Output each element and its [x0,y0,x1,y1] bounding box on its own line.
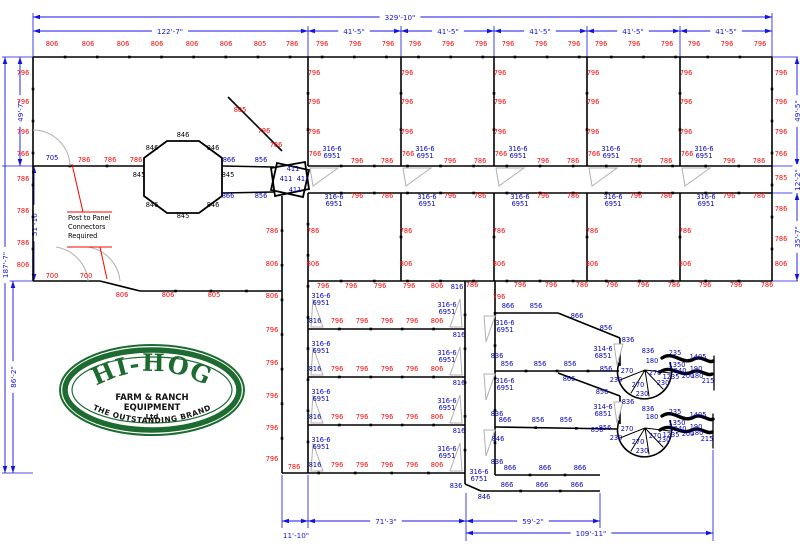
fence-post [482,56,485,59]
part-number-label: 230 [636,447,649,455]
dimension-arrow-icon [3,57,8,64]
part-number-label: 816 [309,365,322,373]
part-number-label: 796 [356,317,369,325]
dimension-label: 41'-5" [437,27,459,36]
part-number-label: 786 [660,192,673,200]
fence-post [572,280,575,283]
part-number-label: 786 [679,227,692,235]
part-number-label: 1405 [690,353,707,361]
fence-post [128,56,131,59]
part-number-label: 6951 [417,152,434,160]
dimension-label-group: 187'-7" [1,247,10,283]
part-number-label: 796 [688,40,701,48]
hihog-logo: HI-HOG FARM & RANCH EQUIPMENT Ltd THE OU… [57,343,247,438]
part-number-label: 700 [80,272,93,280]
fence-post [307,285,310,288]
part-number-label: 796 [381,461,394,469]
fence-post [472,165,475,168]
fence-post [559,490,562,493]
fence-post [64,56,67,59]
note-text: Connectors [68,223,106,231]
part-number-label: 806 [266,260,279,268]
part-number-label: 806 [116,291,129,299]
fence-post [679,92,682,95]
part-number-label: 816 [309,413,322,421]
part-number-label: 856 [255,156,268,164]
part-number-label: 866 [222,192,235,200]
part-number-label: 766 [681,150,694,158]
part-number-label: 786 [270,141,283,149]
part-number-label: 6951 [696,152,713,160]
part-number-label: 796 [444,192,457,200]
part-number-label: 805 [208,291,221,299]
part-number-label: 796 [266,455,279,463]
part-number-label: 796 [545,281,558,289]
part-number-label: 786 [17,239,30,247]
part-number-label: 6951 [605,200,622,208]
part-number-label: 866 [571,481,584,489]
part-number-label: 411 [280,175,293,183]
logo-line1: FARM & RANCH [115,393,188,403]
part-number-label: 766 [402,150,415,158]
fence-post [32,152,35,155]
part-number-label: 6951 [313,395,330,403]
part-number-label: 796 [17,128,30,136]
part-number-label: 856 [530,302,543,310]
dimension-label: 51'-10" [30,210,39,236]
fence-post [307,409,310,412]
dimension-arrow-icon [673,29,680,34]
part-number-label: 796 [382,40,395,48]
logo-line2: EQUIPMENT [124,403,181,413]
part-number-label: 796 [730,281,743,289]
part-number-label: 700 [46,272,59,280]
part-number-label: 6951 [313,299,330,307]
fence-post [32,248,35,251]
dimension-label: 86'-2" [9,366,18,388]
fence-post [704,165,707,168]
part-number-label: 796 [475,40,488,48]
part-number-label: 846 [177,131,190,139]
dimension-arrow-icon [282,519,289,524]
fence-post [354,472,357,475]
part-number-label: 796 [381,413,394,421]
part-number-label: 6951 [512,200,529,208]
part-number-label: 786 [78,156,91,164]
fence-post [400,92,403,95]
fence-post [706,56,709,59]
part-number-label: 766 [17,150,30,158]
part-number-label: 856 [600,324,613,332]
part-number-label: 846 [207,144,220,152]
part-number-label: 766 [309,150,322,158]
part-number-label: 806 [493,260,506,268]
part-number-label: 856 [596,388,609,396]
dimension-arrow-icon [3,466,8,473]
part-number-label: 796 [17,69,30,77]
dimension-arrow-icon [308,29,315,34]
part-number-label: 836 [622,336,635,344]
part-number-label: 786 [381,157,394,165]
part-number-label: 806 [162,291,175,299]
part-number-label: 846 [146,144,159,152]
fence-line [222,166,274,167]
gate-icon [403,168,431,186]
part-number-label: 766 [588,150,601,158]
part-number-label: 796 [587,128,600,136]
part-number-label: 806 [82,40,95,48]
part-number-label: 6951 [326,200,343,208]
fence-post [340,165,343,168]
part-number-label: 806 [431,461,444,469]
gate-icon [614,344,623,365]
dimension-label: 122'-7" [157,27,183,36]
dimension-arrow-icon [680,29,687,34]
dimension-label: 41'-5" [622,27,644,36]
dimension-label: 71'-3" [375,517,397,526]
part-number-label: 796 [406,365,419,373]
part-number-label: 786 [567,192,580,200]
part-number-label: 846 [478,493,491,501]
fence-post [439,165,442,168]
note-leader-line [72,164,83,212]
part-number-label: 796 [266,359,279,367]
part-number-label: 796 [258,127,271,135]
fence-post [493,92,496,95]
note-text: Required [68,232,97,240]
part-number-label: 856 [600,365,613,373]
part-number-label: 1235 [663,431,680,439]
part-number-label: 796 [308,128,321,136]
fence-post [539,280,542,283]
part-number-label: 786 [381,192,394,200]
fence-post [32,120,35,123]
part-number-label: 806 [400,260,413,268]
fence-post [771,88,774,91]
part-number-label: 806 [151,40,164,48]
part-number-label: 785 [775,174,788,182]
part-number-label: 796 [537,157,550,165]
part-number-label: 796 [699,281,712,289]
part-number-label: 796 [406,461,419,469]
part-number-label: 786 [286,40,299,48]
part-number-label: 796 [606,281,619,289]
part-number-label: 6951 [419,200,436,208]
fence-post [281,437,284,440]
part-number-label: 796 [266,392,279,400]
part-number-label: 786 [130,156,143,164]
dimension-arrow-icon [706,531,713,536]
part-number-label: 796 [680,128,693,136]
gate-icon [310,168,338,186]
fence-post [738,192,741,195]
fence-post [307,92,310,95]
dimension-label-group: 12'-2" [793,164,800,196]
part-number-label: 6951 [324,152,341,160]
part-number-label: 6951 [439,308,456,316]
dimension-arrow-icon [33,29,40,34]
part-number-label: 786 [775,235,788,243]
fence-post [338,328,341,331]
part-number-label: 806 [431,317,444,325]
part-number-label: 796 [595,40,608,48]
fence-post [572,165,575,168]
part-number-label: 796 [401,98,414,106]
part-number-label: 796 [630,157,643,165]
part-number-label: 796 [351,157,364,165]
part-number-label: 786 [753,192,766,200]
gate-icon [484,430,495,456]
part-number-label: 806 [431,413,444,421]
fence-post [514,56,517,59]
part-number-label: 270 [649,369,662,377]
fence-post [281,333,284,336]
part-number-label: 796 [568,40,581,48]
part-number-label: 796 [349,40,362,48]
part-number-label: 796 [401,69,414,77]
fence-post [738,165,741,168]
gate-icon [682,168,710,186]
fence-post [281,368,284,371]
part-number-label: 796 [494,98,507,106]
part-number-label: 235 [669,408,682,416]
part-number-label: 856 [255,192,268,200]
fence-post [224,56,227,59]
part-number-label: 1235 [663,373,680,381]
part-number-label: 796 [406,413,419,421]
part-number-label: 796 [266,424,279,432]
fence-post [338,424,341,427]
fence-post [406,165,409,168]
fence-post [406,192,409,195]
fence-post [317,472,320,475]
part-number-label: 806 [679,260,692,268]
dimension-label: 59'-2" [522,517,544,526]
dimension-arrow-icon [466,519,473,524]
dimension-label: 41'-5" [715,27,737,36]
part-number-label: 6951 [439,356,456,364]
fence-post [401,328,404,331]
fence-post [439,192,442,195]
part-number-label: 786 [466,281,479,289]
dimension-arrow-icon [308,519,315,524]
part-number-label: 270 [632,438,645,446]
part-number-label: 786 [753,157,766,165]
part-number-label: 796 [444,157,457,165]
part-number-label: 6951 [439,404,456,412]
part-number-label: 766 [775,150,788,158]
part-number-label: 230 [610,434,623,442]
part-number-label: 6951 [313,347,330,355]
part-number-label: 6751 [471,475,488,483]
part-number-label: 796 [630,192,643,200]
part-number-label: 796 [535,40,548,48]
part-number-label: 786 [17,207,30,215]
site-plan-drawing: 329'-10"122'-7"41'-5"41'-5"41'-5"41'-5"4… [0,0,800,556]
part-number-label: 816 [453,379,466,387]
part-number-label: 796 [356,413,369,421]
part-number-label: 806 [775,260,788,268]
part-number-label: 796 [494,128,507,136]
dimension-arrow-icon [587,29,594,34]
part-number-label: 270 [632,381,645,389]
part-number-label: 805 [254,40,267,48]
part-number-label: 866 [563,375,576,383]
part-number-label: 796 [17,98,30,106]
fence-post [106,165,109,168]
dimension-arrow-icon [11,466,16,473]
part-number-label: 796 [775,69,788,77]
fence-post [427,472,430,475]
part-number-label: 806 [431,282,444,290]
part-number-label: 215 [701,435,714,443]
fence-post [771,248,774,251]
fence-post [610,56,613,59]
fence-post [771,152,774,155]
part-number-label: 856 [501,360,514,368]
dimension-label: 35'-7" [793,226,800,248]
fence-post [370,376,373,379]
part-number-label: 856 [534,360,547,368]
note-text: Post to Panel [68,214,111,222]
fence-post [192,56,195,59]
fence-post [534,426,537,429]
part-number-label: 845 [133,171,146,179]
fence-post [307,441,310,444]
part-number-label: 786 [104,156,117,164]
dimension-arrow-icon [795,274,800,281]
cad-plan-page: 329'-10"122'-7"41'-5"41'-5"41'-5"41'-5"4… [0,0,800,556]
dimension-label-group: 35'-7" [793,221,800,253]
part-number-label: 806 [46,40,59,48]
part-number-label: 866 [501,481,514,489]
fence-post [464,415,467,418]
part-number-label: 805 [234,106,247,114]
dimension-label: 12'-2" [793,169,800,191]
part-number-label: 796 [345,282,358,290]
part-number-label: 786 [288,463,301,471]
dimension-arrow-icon [301,29,308,34]
part-number-label: 6951 [313,443,330,451]
fence-post [174,290,177,293]
fence-post [464,314,467,317]
dimension-arrow-icon [33,15,40,20]
dimension-arrow-icon [487,29,494,34]
part-number-label: 786 [567,157,580,165]
part-number-label: 6851 [595,410,612,418]
part-number-label: 796 [351,192,364,200]
part-number-label: 836 [450,482,463,490]
fence-post [519,490,522,493]
fence-post [432,424,435,427]
fence-post [373,192,376,195]
fence-post [464,449,467,452]
part-number-label: 816 [453,331,466,339]
part-number-label: 796 [374,282,387,290]
part-number-label: 796 [754,40,767,48]
fence-post [32,88,35,91]
part-number-label: 796 [587,98,600,106]
part-number-label: 705 [46,154,59,162]
part-number-label: 796 [721,40,734,48]
part-number-label: 796 [317,282,330,290]
gate-icon [484,374,495,400]
part-number-label: 866 [574,464,587,472]
part-number-label: 866 [504,464,517,472]
part-number-label: 796 [680,69,693,77]
fence-post [307,223,310,226]
part-number-label: 836 [622,398,635,406]
part-number-label: 806 [586,260,599,268]
part-number-label: 796 [403,282,416,290]
fence-post [529,474,532,477]
fence-post [432,376,435,379]
fence-post [307,254,310,257]
part-number-label: 411 [297,175,310,183]
dimension-arrow-icon [795,57,800,64]
fence-post [506,280,509,283]
fence-post [289,56,292,59]
part-number-label: 6951 [510,152,527,160]
fence-post [338,376,341,379]
part-number-label: 796 [442,40,455,48]
part-number-label: 856 [564,360,577,368]
part-number-label: 6951 [698,200,715,208]
part-number-label: 411 [287,165,300,173]
part-number-label: 796 [409,40,422,48]
fence-post [494,344,497,347]
part-number-label: 796 [331,461,344,469]
part-number-label: 230 [636,390,649,398]
part-number-label: 6851 [595,352,612,360]
part-number-label: 786 [668,281,681,289]
fence-post [771,120,774,123]
dimension-arrow-icon [18,57,23,64]
part-number-label: 180 [646,413,659,421]
part-number-label: 796 [775,98,788,106]
fence-post [671,165,674,168]
part-number-label: 806 [307,260,320,268]
part-number-label: 786 [474,192,487,200]
fence-post [96,56,99,59]
part-number-label: 856 [532,416,545,424]
part-number-label: 806 [186,40,199,48]
part-number-label: 796 [316,40,329,48]
dimension-arrow-icon [593,519,600,524]
fence-post [493,236,496,239]
dimension-label: 329'-10" [385,13,416,22]
part-number-label: 796 [637,281,650,289]
part-number-label: 806 [220,40,233,48]
dimension-label: 41'-5" [343,27,365,36]
fence-post [739,56,742,59]
dimension-label: 41'-5" [529,27,551,36]
part-number-label: 796 [661,40,674,48]
fence-line [465,484,481,491]
part-number-label: 836 [642,347,655,355]
part-number-label: 836 [491,458,504,466]
part-number-label: 796 [401,128,414,136]
part-number-label: 786 [761,281,774,289]
dimension-label-group: 86'-2" [9,361,18,393]
fence-post [556,370,559,373]
fence-post [546,56,549,59]
part-number-label: 796 [356,461,369,469]
dimension-arrow-icon [459,519,466,524]
fence-post [257,56,260,59]
fence-post [674,56,677,59]
part-number-label: 796 [356,365,369,373]
